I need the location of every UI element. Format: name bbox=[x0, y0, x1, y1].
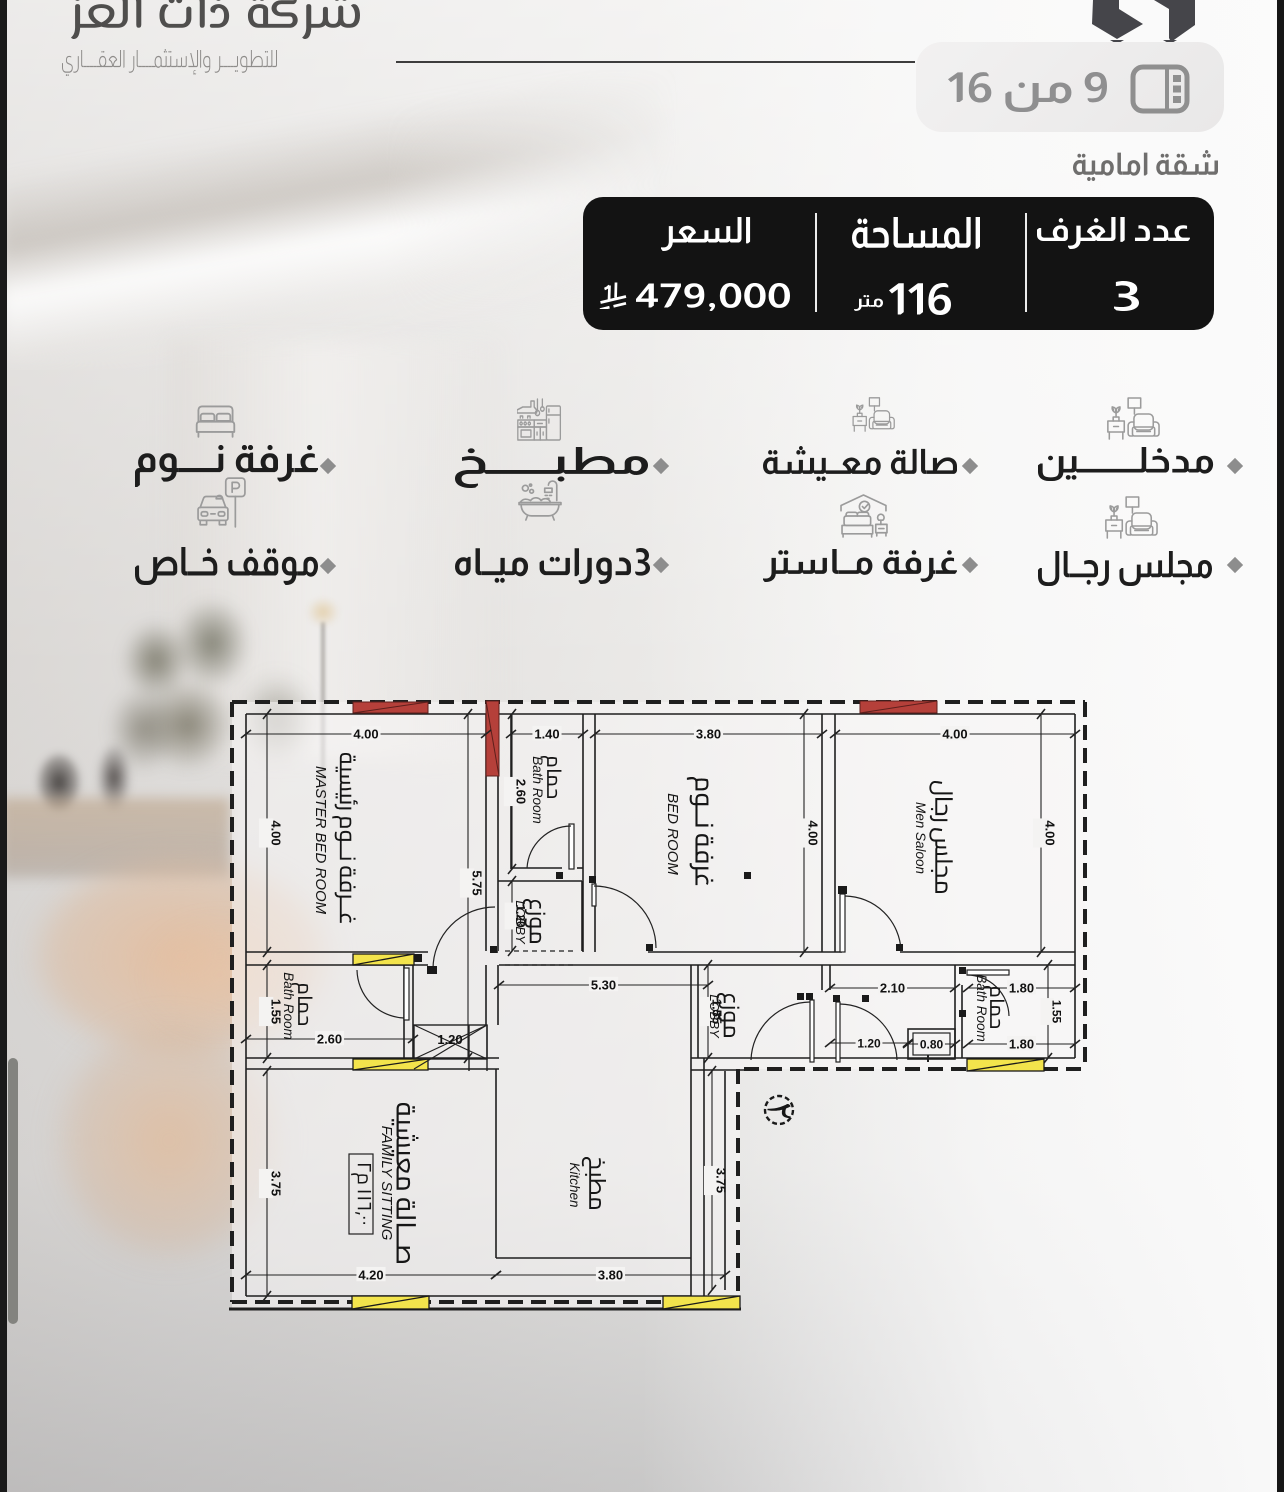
svg-text:0.80: 0.80 bbox=[920, 1037, 944, 1051]
svg-text:LOBBY: LOBBY bbox=[513, 900, 528, 945]
svg-text:3.80: 3.80 bbox=[696, 727, 721, 742]
svg-text:4.00: 4.00 bbox=[269, 820, 284, 845]
svg-text:Bath Room: Bath Room bbox=[974, 974, 989, 1042]
svg-text:1.55: 1.55 bbox=[1049, 1000, 1063, 1024]
svg-text:MASTER BED ROOM: MASTER BED ROOM bbox=[312, 766, 329, 915]
svg-text:1.80: 1.80 bbox=[1009, 981, 1034, 996]
svg-text:3.80: 3.80 bbox=[598, 1268, 623, 1283]
svg-text:FAMILY SITTING: FAMILY SITTING bbox=[378, 1126, 395, 1241]
svg-text:Men Saloon: Men Saloon bbox=[913, 802, 928, 874]
svg-text:1.20: 1.20 bbox=[437, 1032, 462, 1047]
svg-text:1.80: 1.80 bbox=[1009, 1037, 1034, 1052]
svg-text:4.20: 4.20 bbox=[358, 1268, 383, 1283]
svg-text:3.75: 3.75 bbox=[269, 1171, 284, 1196]
svg-text:Bath Room: Bath Room bbox=[530, 756, 545, 824]
svg-text:BED ROOM: BED ROOM bbox=[664, 793, 681, 875]
svg-text:2.60: 2.60 bbox=[317, 1032, 342, 1047]
svg-text:3.75: 3.75 bbox=[714, 1168, 729, 1193]
svg-text:4.00: 4.00 bbox=[1043, 820, 1058, 845]
svg-text:LOBBY: LOBBY bbox=[707, 994, 722, 1039]
svg-text:4.00: 4.00 bbox=[806, 820, 821, 845]
svg-text:2.10: 2.10 bbox=[880, 981, 905, 996]
svg-text:Bath Room: Bath Room bbox=[281, 972, 296, 1040]
svg-text:4.00: 4.00 bbox=[942, 727, 967, 742]
svg-text:1.40: 1.40 bbox=[534, 727, 559, 742]
svg-text:Kitchen: Kitchen bbox=[567, 1162, 582, 1207]
svg-text:4.00: 4.00 bbox=[353, 727, 378, 742]
svg-text:5.75: 5.75 bbox=[470, 870, 485, 895]
svg-text:5.30: 5.30 bbox=[591, 978, 616, 993]
svg-text:2.60: 2.60 bbox=[514, 779, 529, 804]
svg-text:1.20: 1.20 bbox=[857, 1036, 881, 1050]
